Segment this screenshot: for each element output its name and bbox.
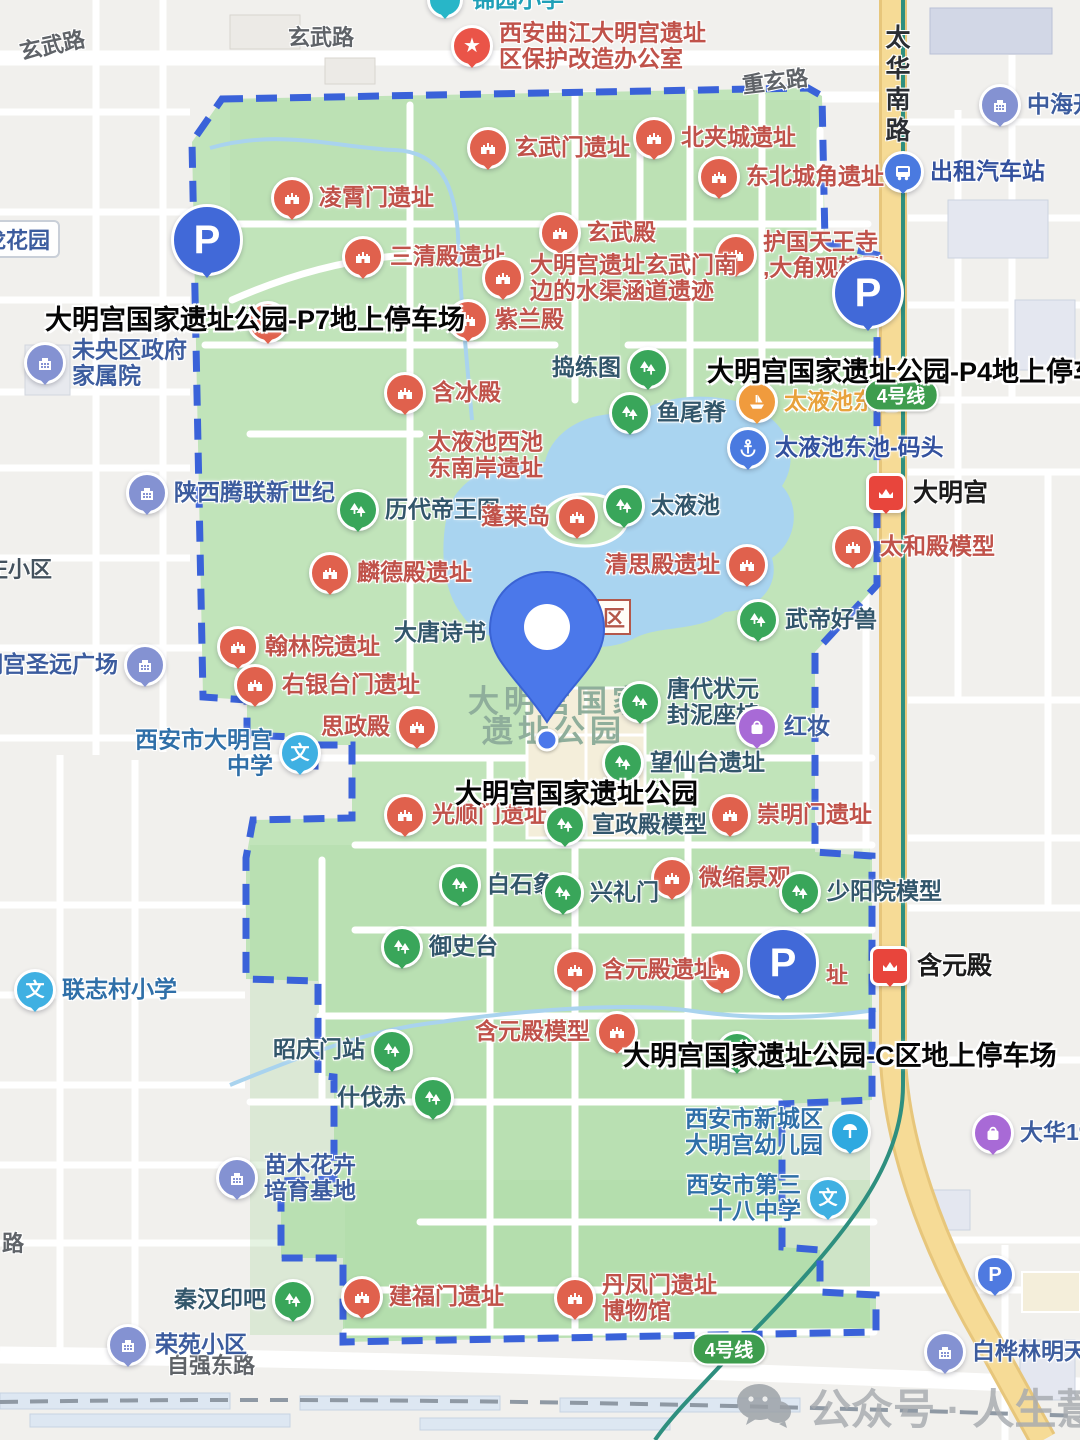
- poi-label-daminggong-middle-school: 西安市大明宫中学: [135, 727, 273, 779]
- shop-pin-icon: [736, 706, 778, 748]
- poi-c-zone-parking[interactable]: P: [747, 927, 819, 999]
- poi-label-taxi-station: 出租汽车站: [930, 159, 1045, 185]
- poi-hanlin-academy-ruins[interactable]: 翰林院遗址: [217, 626, 259, 668]
- cyan-pin-icon: [427, 0, 463, 18]
- poi-label-shanxi-tenglian: 陕西腾联新世纪: [174, 480, 335, 506]
- scenic-pin-icon: [371, 1029, 413, 1071]
- metro-pin-icon: [866, 473, 906, 513]
- poi-qingsi-hall-ruins[interactable]: 清思殿遗址: [726, 544, 768, 586]
- poi-label-xuanzheng-hall-model: 宣政殿模型: [592, 812, 707, 838]
- poi-label-xuanwumen-ruins: 玄武门遗址: [515, 135, 630, 161]
- poi-label-beijiacheng-ruins: 北夹城遗址: [681, 125, 796, 151]
- poi-label-rongyuan-community: 荣苑小区: [155, 1332, 247, 1358]
- poi-label-lingxiaomen-ruins: 凌霄门遗址: [319, 185, 434, 211]
- poi-label-youyintai-gate-ruins: 右银台门遗址: [282, 672, 420, 698]
- line4-badge-south: 4号线: [692, 1333, 767, 1366]
- poi-label-miniature-landscape: 微缩景观: [699, 865, 791, 891]
- poi-daminggong-metro[interactable]: 大明宫: [866, 473, 906, 513]
- poi-linde-hall-ruins[interactable]: 麟德殿遗址: [309, 552, 351, 594]
- poi-zhonghai-kai[interactable]: 中海开: [979, 84, 1021, 126]
- poi-label-daolian-painting: 捣练图: [552, 355, 621, 381]
- poi-label-jinyuan-primary-school: 锦园小学: [472, 0, 564, 13]
- poi-label-northeast-corner-ruins: 东北城角遗址: [746, 164, 884, 190]
- scenic-pin-icon: [619, 681, 661, 723]
- poi-seedling-flower-base[interactable]: 苗木花卉培育基地: [216, 1157, 258, 1199]
- ruin-pin-icon: [554, 1277, 596, 1319]
- poi-label-penglai-island: 蓬莱岛: [481, 504, 550, 530]
- bus-pin-icon: [882, 151, 924, 193]
- current-location-dot: [536, 729, 559, 752]
- poi-lianzhi-village-school[interactable]: 文联志村小学: [14, 969, 56, 1011]
- poi-yushitai[interactable]: 御史台: [381, 926, 423, 968]
- poi-label-water-channel-ruins: 大明宫遗址玄武门南边的水渠涵道遗迹: [530, 252, 737, 304]
- ruin-pin-icon: [482, 257, 524, 299]
- poi-yuweiji[interactable]: 鱼尾脊: [609, 392, 651, 434]
- poi-label-daminggong-metro: 大明宫: [913, 479, 988, 507]
- scenic-pin-icon: [272, 1279, 314, 1321]
- ruin-pin-icon: [709, 794, 751, 836]
- poi-beijiacheng-ruins[interactable]: 北夹城遗址: [633, 117, 675, 159]
- poi-label-linde-hall-ruins: 麟德殿遗址: [357, 560, 472, 586]
- scenic-pin-icon: [737, 599, 779, 641]
- poi-water-channel-ruins[interactable]: 大明宫遗址玄武门南边的水渠涵道遗迹: [482, 257, 524, 299]
- poi-label-baihualin-mingtian: 白桦林明天: [972, 1339, 1080, 1365]
- ruin-pin-icon: [726, 544, 768, 586]
- poi-label-danfengmen-museum: 丹凤门遗址博物馆: [602, 1272, 717, 1324]
- poi-label-no38-middle-school: 西安市第三十八中学: [686, 1172, 801, 1224]
- poi-jianfumen-ruins[interactable]: 建福门遗址: [341, 1276, 383, 1318]
- poi-hongzhuang-shop[interactable]: 红妆: [736, 706, 778, 748]
- scenic-pin-icon: [542, 872, 584, 914]
- scenic-pin-icon: [603, 485, 645, 527]
- poi-label-datang-poetry: 大唐诗书: [394, 620, 486, 646]
- ruin-pin-icon: [342, 236, 384, 278]
- poi-label-hanyuan-hall-metro: 含元殿: [917, 952, 992, 980]
- ruin-pin-icon: [554, 949, 596, 991]
- poi-label-zhonghai-kai: 中海开: [1027, 92, 1080, 118]
- poi-weiyang-gov-compound[interactable]: 未央区政府家属院: [24, 342, 66, 384]
- poi-youyintai-gate-ruins[interactable]: 右银台门遗址: [234, 664, 276, 706]
- poi-taihe-hall-model[interactable]: 太和殿模型: [832, 526, 874, 568]
- poi-label-hanyuan-hall-model: 含元殿模型: [475, 1019, 590, 1045]
- poi-label-seedling-flower-base: 苗木花卉培育基地: [264, 1152, 356, 1204]
- poi-xuanwumen-ruins[interactable]: 玄武门遗址: [467, 127, 509, 169]
- poi-label-hanlin-academy-ruins: 翰林院遗址: [265, 634, 380, 660]
- poi-label-chongmingmen-ruins: 崇明门遗址: [757, 802, 872, 828]
- poi-label-zhaoqingmen-station: 昭庆门站: [273, 1037, 365, 1063]
- watermark: 公众号 · 人生薏林: [735, 1376, 1080, 1437]
- building-pin-icon: [107, 1324, 149, 1366]
- poi-penglai-island[interactable]: 蓬莱岛: [556, 496, 598, 538]
- p7-parking-name: 大明宫国家遗址公园-P7地上停车场: [45, 298, 465, 337]
- poi-p4-parking[interactable]: P: [832, 257, 904, 329]
- parkL-pin-icon: P: [832, 257, 904, 329]
- poi-label-daminggong-kindergarten: 西安市新城区大明宫幼儿园: [685, 1106, 823, 1158]
- poi-zhuangyuan-seal-seat[interactable]: 唐代状元封泥座椅: [619, 681, 661, 723]
- poi-shengyuan-plaza[interactable]: 大明宫圣远广场: [124, 644, 166, 686]
- poi-label-lianzhi-village-school: 联志村小学: [62, 977, 177, 1003]
- scenic-pin-icon: [337, 489, 379, 531]
- poi-label-taiye-west-pool-ruins: 太液池西池东南岸遗址: [428, 429, 543, 481]
- poi-taiye-east-pool-pier[interactable]: 太液池东池-码头: [727, 427, 769, 469]
- map-canvas[interactable]: 大明宫国家遗址公园 锦园小学★西安曲江大明宫遗址区保护改造办公室中海开出租汽车站…: [0, 0, 1080, 1440]
- school-pin-icon: 文: [14, 969, 56, 1011]
- poi-rongyuan-community[interactable]: 荣苑小区: [107, 1324, 149, 1366]
- poi-dahua-19[interactable]: 大华19: [972, 1112, 1014, 1154]
- parkS-pin-icon: P: [975, 1255, 1015, 1295]
- poi-label-shifachi: 什伐赤: [337, 1085, 406, 1111]
- ruin-pin-icon: [396, 706, 438, 748]
- poi-label-hanyuan-hall-ruins: 含元殿遗址: [602, 957, 717, 983]
- poi-taxi-station[interactable]: 出租汽车站: [882, 151, 924, 193]
- poi-hanbing-hall[interactable]: 含冰殿: [384, 372, 426, 414]
- poi-hanyuan-hall-metro[interactable]: 含元殿: [870, 946, 910, 986]
- poi-label-taiye-east-pool-pier: 太液池东池-码头: [775, 435, 944, 461]
- poi-guangshunmen-ruins[interactable]: 光顺门遗址: [384, 794, 426, 836]
- poi-label-sizheng-hall: 思政殿: [321, 714, 390, 740]
- poi-label-wudi-haoshou: 武帝好兽: [785, 607, 877, 633]
- poi-label-shaoyangyuan-model: 少阳院模型: [827, 879, 942, 905]
- poi-chongmingmen-ruins[interactable]: 崇明门遗址: [709, 794, 751, 836]
- poi-small-parking[interactable]: P: [975, 1255, 1015, 1295]
- poi-label-qinhan-seal-bar: 秦汉印吧: [174, 1287, 266, 1313]
- poi-p7-parking[interactable]: P: [171, 204, 243, 276]
- parkL-pin-icon: P: [171, 204, 243, 276]
- poi-shifachi[interactable]: 什伐赤: [412, 1077, 454, 1119]
- poi-jinyuan-primary-school[interactable]: 锦园小学: [427, 0, 463, 18]
- metro-pin-icon: [870, 946, 910, 986]
- poi-no38-middle-school[interactable]: 文西安市第三十八中学: [807, 1177, 849, 1219]
- scenic-pin-icon: [779, 871, 821, 913]
- poi-white-stone-elephant[interactable]: 白石象: [439, 864, 481, 906]
- p4-parking-name: 大明宫国家遗址公园-P4地上停车场: [707, 350, 1080, 389]
- poi-zhaoqingmen-station[interactable]: 昭庆门站: [371, 1029, 413, 1071]
- poi-sanqing-hall-ruins[interactable]: 三清殿遗址: [342, 236, 384, 278]
- poi-xuanwu-hall[interactable]: 玄武殿: [539, 212, 581, 254]
- building-pin-icon: [979, 84, 1021, 126]
- poi-daminggong-middle-school[interactable]: 文西安市大明宫中学: [279, 732, 321, 774]
- ruin-pin-icon: [341, 1276, 383, 1318]
- poi-label-weiyang-gov-compound: 未央区政府家属院: [72, 337, 187, 389]
- poi-sizheng-hall[interactable]: 思政殿: [396, 706, 438, 748]
- ruin-pin-icon: [271, 177, 313, 219]
- poi-daolian-painting[interactable]: 捣练图: [627, 347, 669, 389]
- ruin-pin-icon: [633, 117, 675, 159]
- current-location-pin[interactable]: [482, 567, 612, 732]
- school-pin-icon: 文: [279, 732, 321, 774]
- poi-shanxi-tenglian[interactable]: 陕西腾联新世纪: [126, 472, 168, 514]
- poi-label-dahua-19: 大华19: [1020, 1120, 1080, 1146]
- kind-pin-icon: [829, 1111, 871, 1153]
- poi-label-taihe-hall-model: 太和殿模型: [880, 534, 995, 560]
- poi-label-zilan-hall: 紫兰殿: [495, 307, 564, 333]
- anchor-pin-icon: [727, 427, 769, 469]
- ruin-pin-icon: [539, 212, 581, 254]
- scenic-pin-icon: [381, 926, 423, 968]
- ruin-pin-icon: [309, 552, 351, 594]
- poi-xinglimen[interactable]: 兴礼门: [542, 872, 584, 914]
- wechat-icon: [735, 1382, 793, 1432]
- poi-emperors-painting[interactable]: 历代帝王图: [337, 489, 379, 531]
- ruin-pin-icon: [384, 794, 426, 836]
- park-name: 大明宫国家遗址公园: [455, 772, 698, 811]
- ruin-pin-icon: [384, 372, 426, 414]
- poi-wudi-haoshou[interactable]: 武帝好兽: [737, 599, 779, 641]
- shop-pin-icon: [972, 1112, 1014, 1154]
- ruin-pin-icon: [217, 626, 259, 668]
- parkL-pin-icon: P: [747, 927, 819, 999]
- ruin-pin-icon: [698, 156, 740, 198]
- covered-ruin-fragment: 址: [826, 958, 848, 990]
- ruin-pin-icon: [832, 526, 874, 568]
- scenic-pin-icon: [439, 864, 481, 906]
- poi-label-xinglimen: 兴礼门: [590, 880, 659, 906]
- ruin-pin-icon: [234, 664, 276, 706]
- poi-baihualin-mingtian[interactable]: 白桦林明天: [924, 1331, 966, 1373]
- ruin-pin-icon: [467, 127, 509, 169]
- poi-taiye-pool[interactable]: 太液池: [603, 485, 645, 527]
- poi-danfengmen-museum[interactable]: 丹凤门遗址博物馆: [554, 1277, 596, 1319]
- building-pin-icon: [216, 1157, 258, 1199]
- scenic-pin-icon: [627, 347, 669, 389]
- scenic-pin-icon: [609, 392, 651, 434]
- building-pin-icon: [24, 342, 66, 384]
- watermark-text: 公众号 · 人生薏林: [809, 1376, 1080, 1437]
- poi-label-qingsi-hall-ruins: 清思殿遗址: [605, 552, 720, 578]
- poi-hanyuan-hall-ruins[interactable]: 含元殿遗址: [554, 949, 596, 991]
- poi-taiye-west-pool-ruins[interactable]: 太液池西池东南岸遗址: [428, 429, 543, 481]
- poi-label-yuweiji: 鱼尾脊: [657, 400, 726, 426]
- poi-qinhan-seal-bar[interactable]: 秦汉印吧: [272, 1279, 314, 1321]
- ruin-pin-icon: [556, 496, 598, 538]
- poi-label-daminggong-protection-office: 西安曲江大明宫遗址区保护改造办公室: [499, 20, 706, 72]
- poi-label-taiye-pool: 太液池: [651, 493, 720, 519]
- star-pin-icon: ★: [451, 25, 493, 67]
- poi-shaoyangyuan-model[interactable]: 少阳院模型: [779, 871, 821, 913]
- poi-label-hanbing-hall: 含冰殿: [432, 380, 501, 406]
- school-pin-icon: 文: [807, 1177, 849, 1219]
- poi-northeast-corner-ruins[interactable]: 东北城角遗址: [698, 156, 740, 198]
- poi-daminggong-kindergarten[interactable]: 西安市新城区大明宫幼儿园: [829, 1111, 871, 1153]
- poi-label-shengyuan-plaza: 大明宫圣远广场: [0, 652, 118, 678]
- poi-label-jianfumen-ruins: 建福门遗址: [389, 1284, 504, 1310]
- c-parking-name: 大明宫国家遗址公园-C区地上停车场: [623, 1034, 1057, 1073]
- building-pin-icon: [924, 1331, 966, 1373]
- building-pin-icon: [126, 472, 168, 514]
- poi-lingxiaomen-ruins[interactable]: 凌霄门遗址: [271, 177, 313, 219]
- poi-daminggong-protection-office[interactable]: ★西安曲江大明宫遗址区保护改造办公室: [451, 25, 493, 67]
- building-pin-icon: [124, 644, 166, 686]
- poi-label-hongzhuang-shop: 红妆: [784, 714, 830, 740]
- scenic-pin-icon: [412, 1077, 454, 1119]
- poi-label-yushitai: 御史台: [429, 934, 498, 960]
- poi-label-xuanwu-hall: 玄武殿: [587, 220, 656, 246]
